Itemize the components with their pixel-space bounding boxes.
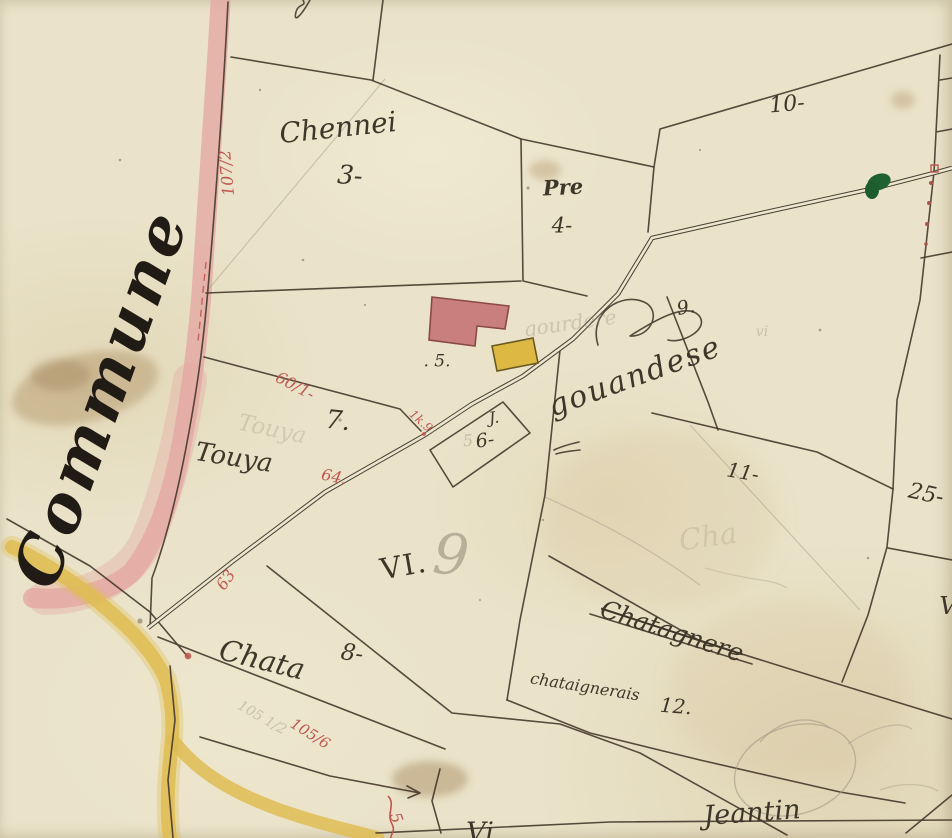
red-label-107-2: 107/2 bbox=[217, 149, 237, 196]
label-parcel-10: 10- bbox=[768, 92, 805, 117]
pencil-label-cha: Cha bbox=[677, 519, 739, 556]
building-yellow bbox=[492, 338, 538, 371]
paper-stains bbox=[4, 91, 915, 797]
label-parcel-7: 7. bbox=[324, 407, 351, 435]
label-section-vi: VI. bbox=[378, 548, 430, 585]
label-v-right-edge: V bbox=[939, 594, 952, 618]
cadastral-map: Commune Chennei 3- Pre 4- 10- 11- 25- . … bbox=[0, 0, 952, 838]
label-parcel-12: 12. bbox=[659, 695, 692, 718]
pencil-label-9: 9 bbox=[431, 527, 471, 586]
label-gouandese-number: 9. bbox=[675, 297, 696, 319]
map-drawing-layer bbox=[0, 0, 952, 838]
label-parcel-pre: Pre bbox=[542, 175, 583, 198]
label-building-number: . 5. bbox=[423, 354, 450, 371]
label-jeantin: Jeantin bbox=[703, 796, 802, 830]
label-parcel-8: 8- bbox=[339, 641, 364, 667]
label-parcel-6-letter: J. bbox=[488, 409, 500, 426]
building-red bbox=[429, 297, 509, 346]
label-parcel-11: 11- bbox=[725, 459, 760, 484]
label-vi-bottom: Vi bbox=[466, 820, 494, 838]
label-parcel-pre-number: 4- bbox=[552, 216, 572, 237]
label-parcel-6-number: 6- bbox=[475, 430, 496, 451]
label-parcel-chennei-number: 3- bbox=[336, 162, 363, 190]
pencil-label-vi-small: vi bbox=[756, 325, 768, 339]
pencil-label-5: 5 bbox=[462, 433, 474, 450]
